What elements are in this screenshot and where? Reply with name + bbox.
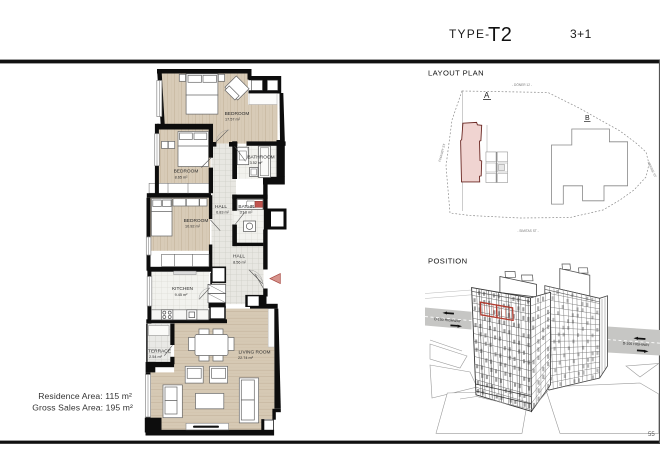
svg-text:2.54 m²: 2.54 m² [149,355,163,359]
svg-text:HALL: HALL [233,254,245,260]
svg-text:POSITION: POSITION [428,257,468,266]
svg-text:BEDROOM: BEDROOM [184,218,209,224]
svg-text:3.18 m²: 3.18 m² [240,211,254,215]
svg-text:LIVING ROOM: LIVING ROOM [239,349,271,355]
svg-text:8.65 m²: 8.65 m² [175,175,189,179]
svg-text:3+1: 3+1 [570,27,592,41]
svg-text:- SIMITAS ST -: - SIMITAS ST - [517,229,538,233]
svg-text:22.74 m²: 22.74 m² [238,356,254,360]
svg-text:LAYOUT PLAN: LAYOUT PLAN [428,69,484,78]
svg-text:MEGRE ST: MEGRE ST [647,161,658,178]
svg-text:- DÖNER 12 -: - DÖNER 12 - [512,83,532,87]
svg-text:6.83 m²: 6.83 m² [216,211,230,215]
svg-text:T2: T2 [488,24,512,46]
svg-text:10.92 m²: 10.92 m² [185,225,201,229]
svg-text:BATHR.: BATHR. [238,204,255,210]
svg-text:FINANBY ST: FINANBY ST [438,143,447,162]
svg-text:TERRACE: TERRACE [148,349,171,355]
svg-text:A: A [484,91,490,100]
svg-text:BATHROOM: BATHROOM [247,155,274,161]
svg-text:BEDROOM: BEDROOM [225,111,250,117]
svg-text:Gross Sales Area: 195 m²: Gross Sales Area: 195 m² [32,403,133,413]
svg-text:55: 55 [648,432,655,438]
svg-text:B: B [585,115,590,122]
svg-text:KITCHEN: KITCHEN [172,286,194,292]
svg-text:HALL: HALL [215,204,227,210]
svg-text:Residence Area: 115 m²: Residence Area: 115 m² [38,391,132,401]
svg-text:8.56 m²: 8.56 m² [233,260,247,264]
svg-text:BEDROOM: BEDROOM [174,169,199,175]
svg-text:3.52 m²: 3.52 m² [250,161,264,165]
svg-text:TYPE-: TYPE- [449,27,490,41]
svg-text:9.45 m²: 9.45 m² [175,293,189,297]
svg-text:17.57 m²: 17.57 m² [225,118,241,122]
